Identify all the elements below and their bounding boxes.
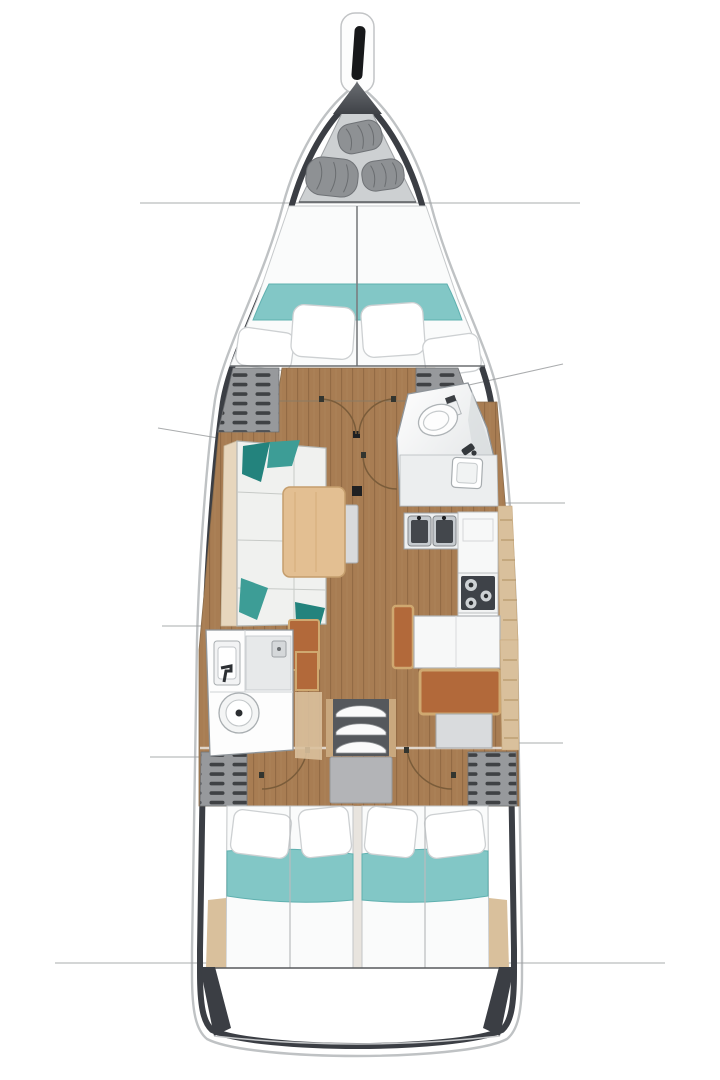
nav-hull-trim xyxy=(500,640,519,750)
fwd-head-sink-basin xyxy=(456,462,477,483)
galley-counter-upper xyxy=(458,512,498,573)
fwd-head-counter xyxy=(400,455,498,506)
pillow xyxy=(290,304,355,360)
floorplan-svg xyxy=(0,0,720,1080)
step-rail-left xyxy=(326,699,333,757)
galley-stove xyxy=(458,573,498,613)
aft-head-cabinet xyxy=(296,652,318,690)
locker-stbd-aft xyxy=(468,752,517,806)
aft-head-toilet xyxy=(219,693,259,733)
companionway xyxy=(326,699,396,803)
faucet-dot xyxy=(417,516,421,520)
aft-head-trim xyxy=(295,692,322,760)
nav-cabinet xyxy=(436,714,492,748)
sink-right-basin xyxy=(436,520,453,543)
table-folded-leaf xyxy=(344,505,358,563)
aft-cabins xyxy=(204,806,512,968)
mast-post xyxy=(352,486,362,496)
aft-head-basin-inner xyxy=(218,647,236,679)
nav-bench-fwd xyxy=(393,606,413,668)
pillow xyxy=(364,806,419,859)
between-beds-gap xyxy=(353,806,362,968)
faucet-dot xyxy=(442,516,446,520)
sink-left-basin xyxy=(411,520,428,543)
locker-port-aft xyxy=(200,752,247,806)
forward-cabin xyxy=(230,206,485,378)
pillow xyxy=(298,806,353,859)
aft-trim-port xyxy=(206,898,226,968)
pillow xyxy=(424,809,487,860)
bow-anchor-fitting xyxy=(341,13,374,93)
pillow xyxy=(230,809,293,860)
aft-trim-stbd xyxy=(489,898,509,968)
engine-box xyxy=(330,757,392,803)
chart-table xyxy=(414,616,500,668)
boat-floorplan xyxy=(0,0,720,1080)
section-line-port-fwd xyxy=(158,428,218,438)
step-rail-right xyxy=(389,699,396,757)
shower-drain-dot xyxy=(277,647,281,651)
pillow xyxy=(360,302,425,358)
table-top xyxy=(283,487,345,577)
nav-seat xyxy=(420,670,500,714)
pillow xyxy=(235,326,296,371)
rolled-sail-2 xyxy=(304,155,360,198)
sofa-backrest xyxy=(221,441,237,626)
